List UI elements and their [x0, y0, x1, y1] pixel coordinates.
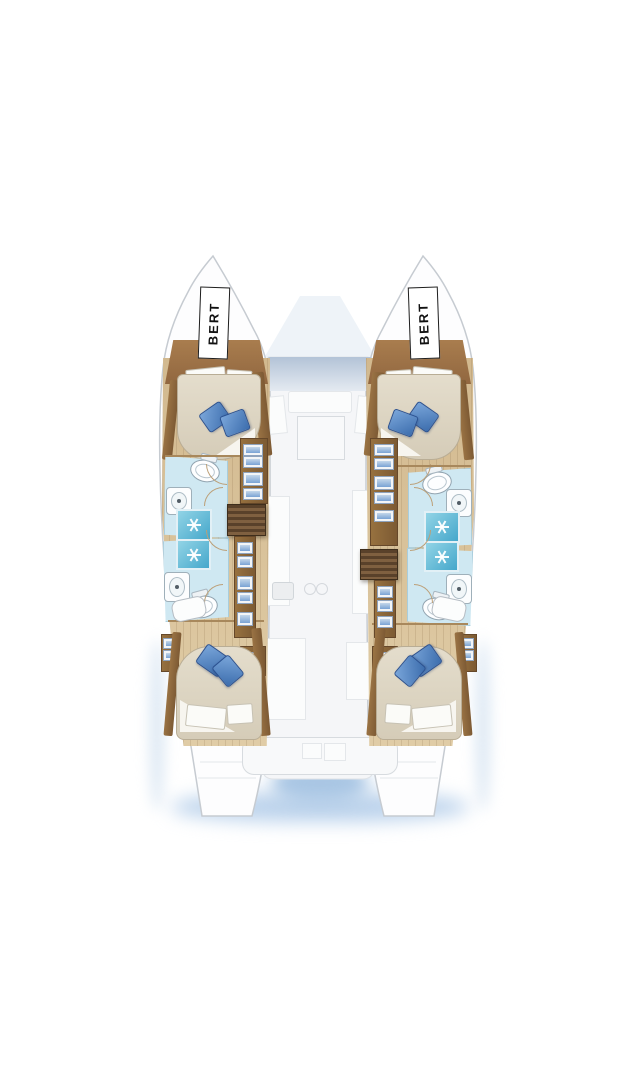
- right-aft-headboard-1: [411, 704, 453, 730]
- drawer-front: [243, 444, 263, 456]
- left-fwd-shower: [178, 511, 210, 539]
- left-aft-headboard-1: [185, 704, 227, 730]
- stove-burner-2: [316, 583, 328, 595]
- saloon-window-band: [264, 357, 376, 391]
- left-bow-berth-label-text: BERT: [206, 301, 223, 345]
- drawer-front: [243, 456, 263, 468]
- drawer-front: [374, 510, 394, 522]
- floor-plan-canvas: BERT BERT: [0, 0, 633, 1080]
- aft-bench-detail-2: [324, 743, 346, 761]
- cockpit-table: [262, 638, 306, 720]
- left-companionway-stairs: [227, 504, 266, 536]
- drawer-front: [374, 458, 394, 470]
- aft-bench-detail-1: [302, 743, 322, 759]
- right-aft-headboard-2: [384, 703, 411, 725]
- drawer-front: [237, 592, 253, 604]
- shower-drain-icon: [187, 524, 201, 526]
- left-bow-berth-label: BERT: [198, 286, 230, 359]
- right-fwd-shower: [426, 513, 458, 541]
- shower-drain-icon: [435, 556, 449, 558]
- right-aft-shower: [426, 543, 457, 570]
- right-companionway-stairs: [360, 549, 398, 580]
- drawer-front: [243, 472, 263, 486]
- boat-outline-layer: [0, 0, 633, 1080]
- drawer-front: [237, 556, 253, 568]
- shower-drain-icon: [187, 554, 201, 556]
- saloon-sofa: [288, 391, 352, 413]
- drawer-front: [243, 488, 263, 500]
- drawer-front: [237, 612, 253, 626]
- drawer-front: [377, 600, 393, 612]
- foredeck-haze: [264, 296, 376, 358]
- drawer-front: [237, 542, 253, 554]
- left-aft-shower: [178, 541, 209, 568]
- drawer-front: [237, 576, 253, 590]
- right-bow-berth-label: BERT: [408, 286, 440, 359]
- drawer-front: [377, 586, 393, 598]
- stove-burner-1: [304, 583, 316, 595]
- galley-sink: [272, 582, 294, 600]
- saloon-table: [297, 416, 345, 460]
- drawer-front: [374, 444, 394, 456]
- shower-drain-icon: [435, 526, 449, 528]
- drawer-front: [374, 476, 394, 490]
- left-aft-headboard-2: [226, 703, 253, 725]
- drawer-front: [377, 616, 393, 628]
- drawer-front: [374, 492, 394, 504]
- right-bow-berth-label-text: BERT: [416, 301, 433, 345]
